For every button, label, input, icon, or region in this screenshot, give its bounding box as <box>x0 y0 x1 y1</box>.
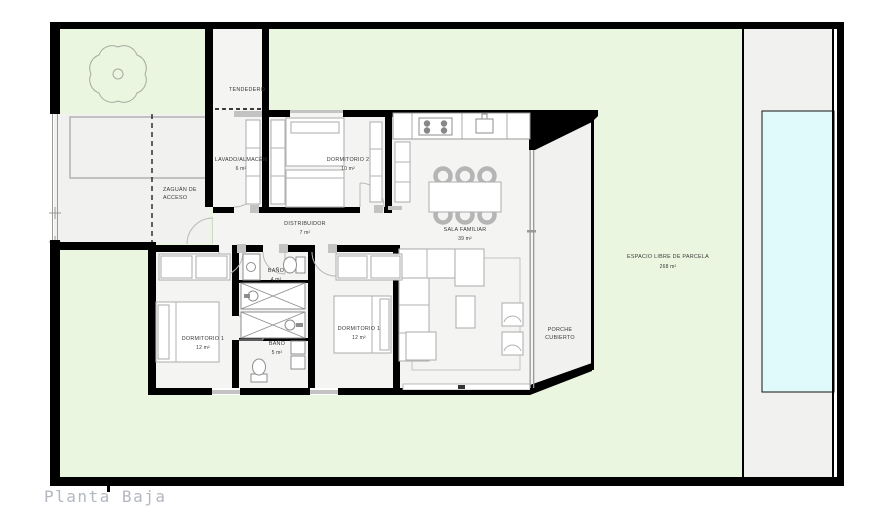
label-porche-2: CUBIERTO <box>545 335 575 341</box>
plan-title: Planta Baja <box>44 487 166 506</box>
label-dormitorio3: DORMITORIO 1 <box>338 326 380 332</box>
area-bano1: 4 m² <box>271 277 282 283</box>
label-porche-1: PORCHE <box>548 327 573 333</box>
stove-icon <box>419 118 452 135</box>
area-dormitorio3: 12 m² <box>352 335 366 341</box>
label-espacio: ESPACIO LIBRE DE PARCELA <box>627 254 709 260</box>
label-zaguan-1: ZAGUÁN DE <box>163 186 197 193</box>
area-sala: 39 m² <box>458 236 472 242</box>
floor-plan-canvas: TENDEDERO ZAGUÁN DE ACCESO LAVADO/ALMACÉ… <box>0 0 886 519</box>
label-bano2: BAÑO <box>269 340 285 347</box>
label-dormitorio2: DORMITORIO 2 <box>327 157 369 163</box>
label-distribuidor: DISTRIBUIDOR <box>284 221 326 227</box>
furniture-dormitorio1 <box>156 254 230 362</box>
label-zaguan-2: ACCESO <box>163 195 187 201</box>
area-dormitorio2: 10 m² <box>341 166 355 172</box>
label-lavado: LAVADO/ALMACÉN <box>215 156 267 163</box>
area-bano2: 5 m² <box>272 350 283 356</box>
label-bano1: BAÑO <box>268 267 284 274</box>
swimming-pool <box>762 111 834 392</box>
label-sala: SALA FAMILIAR <box>444 227 487 233</box>
zaguan-area <box>49 114 213 248</box>
label-tendedero: TENDEDERO <box>229 87 265 93</box>
label-dormitorio1: DORMITORIO 1 <box>182 336 224 342</box>
area-lavado: 6 m² <box>236 166 247 172</box>
area-distribuidor: 7 m² <box>300 230 311 236</box>
area-dormitorio1: 12 m² <box>196 345 210 351</box>
area-espacio: 268 m² <box>660 264 677 270</box>
floor-plan-drawing: TENDEDERO ZAGUÁN DE ACCESO LAVADO/ALMACÉ… <box>0 0 886 519</box>
